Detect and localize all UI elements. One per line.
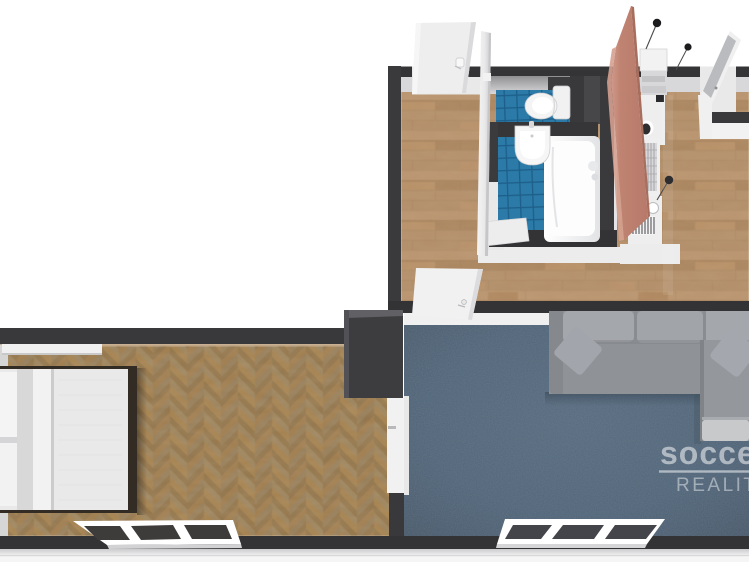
svg-text:REALITY: REALITY [676, 475, 749, 496]
svg-text:socce: socce [660, 435, 749, 471]
